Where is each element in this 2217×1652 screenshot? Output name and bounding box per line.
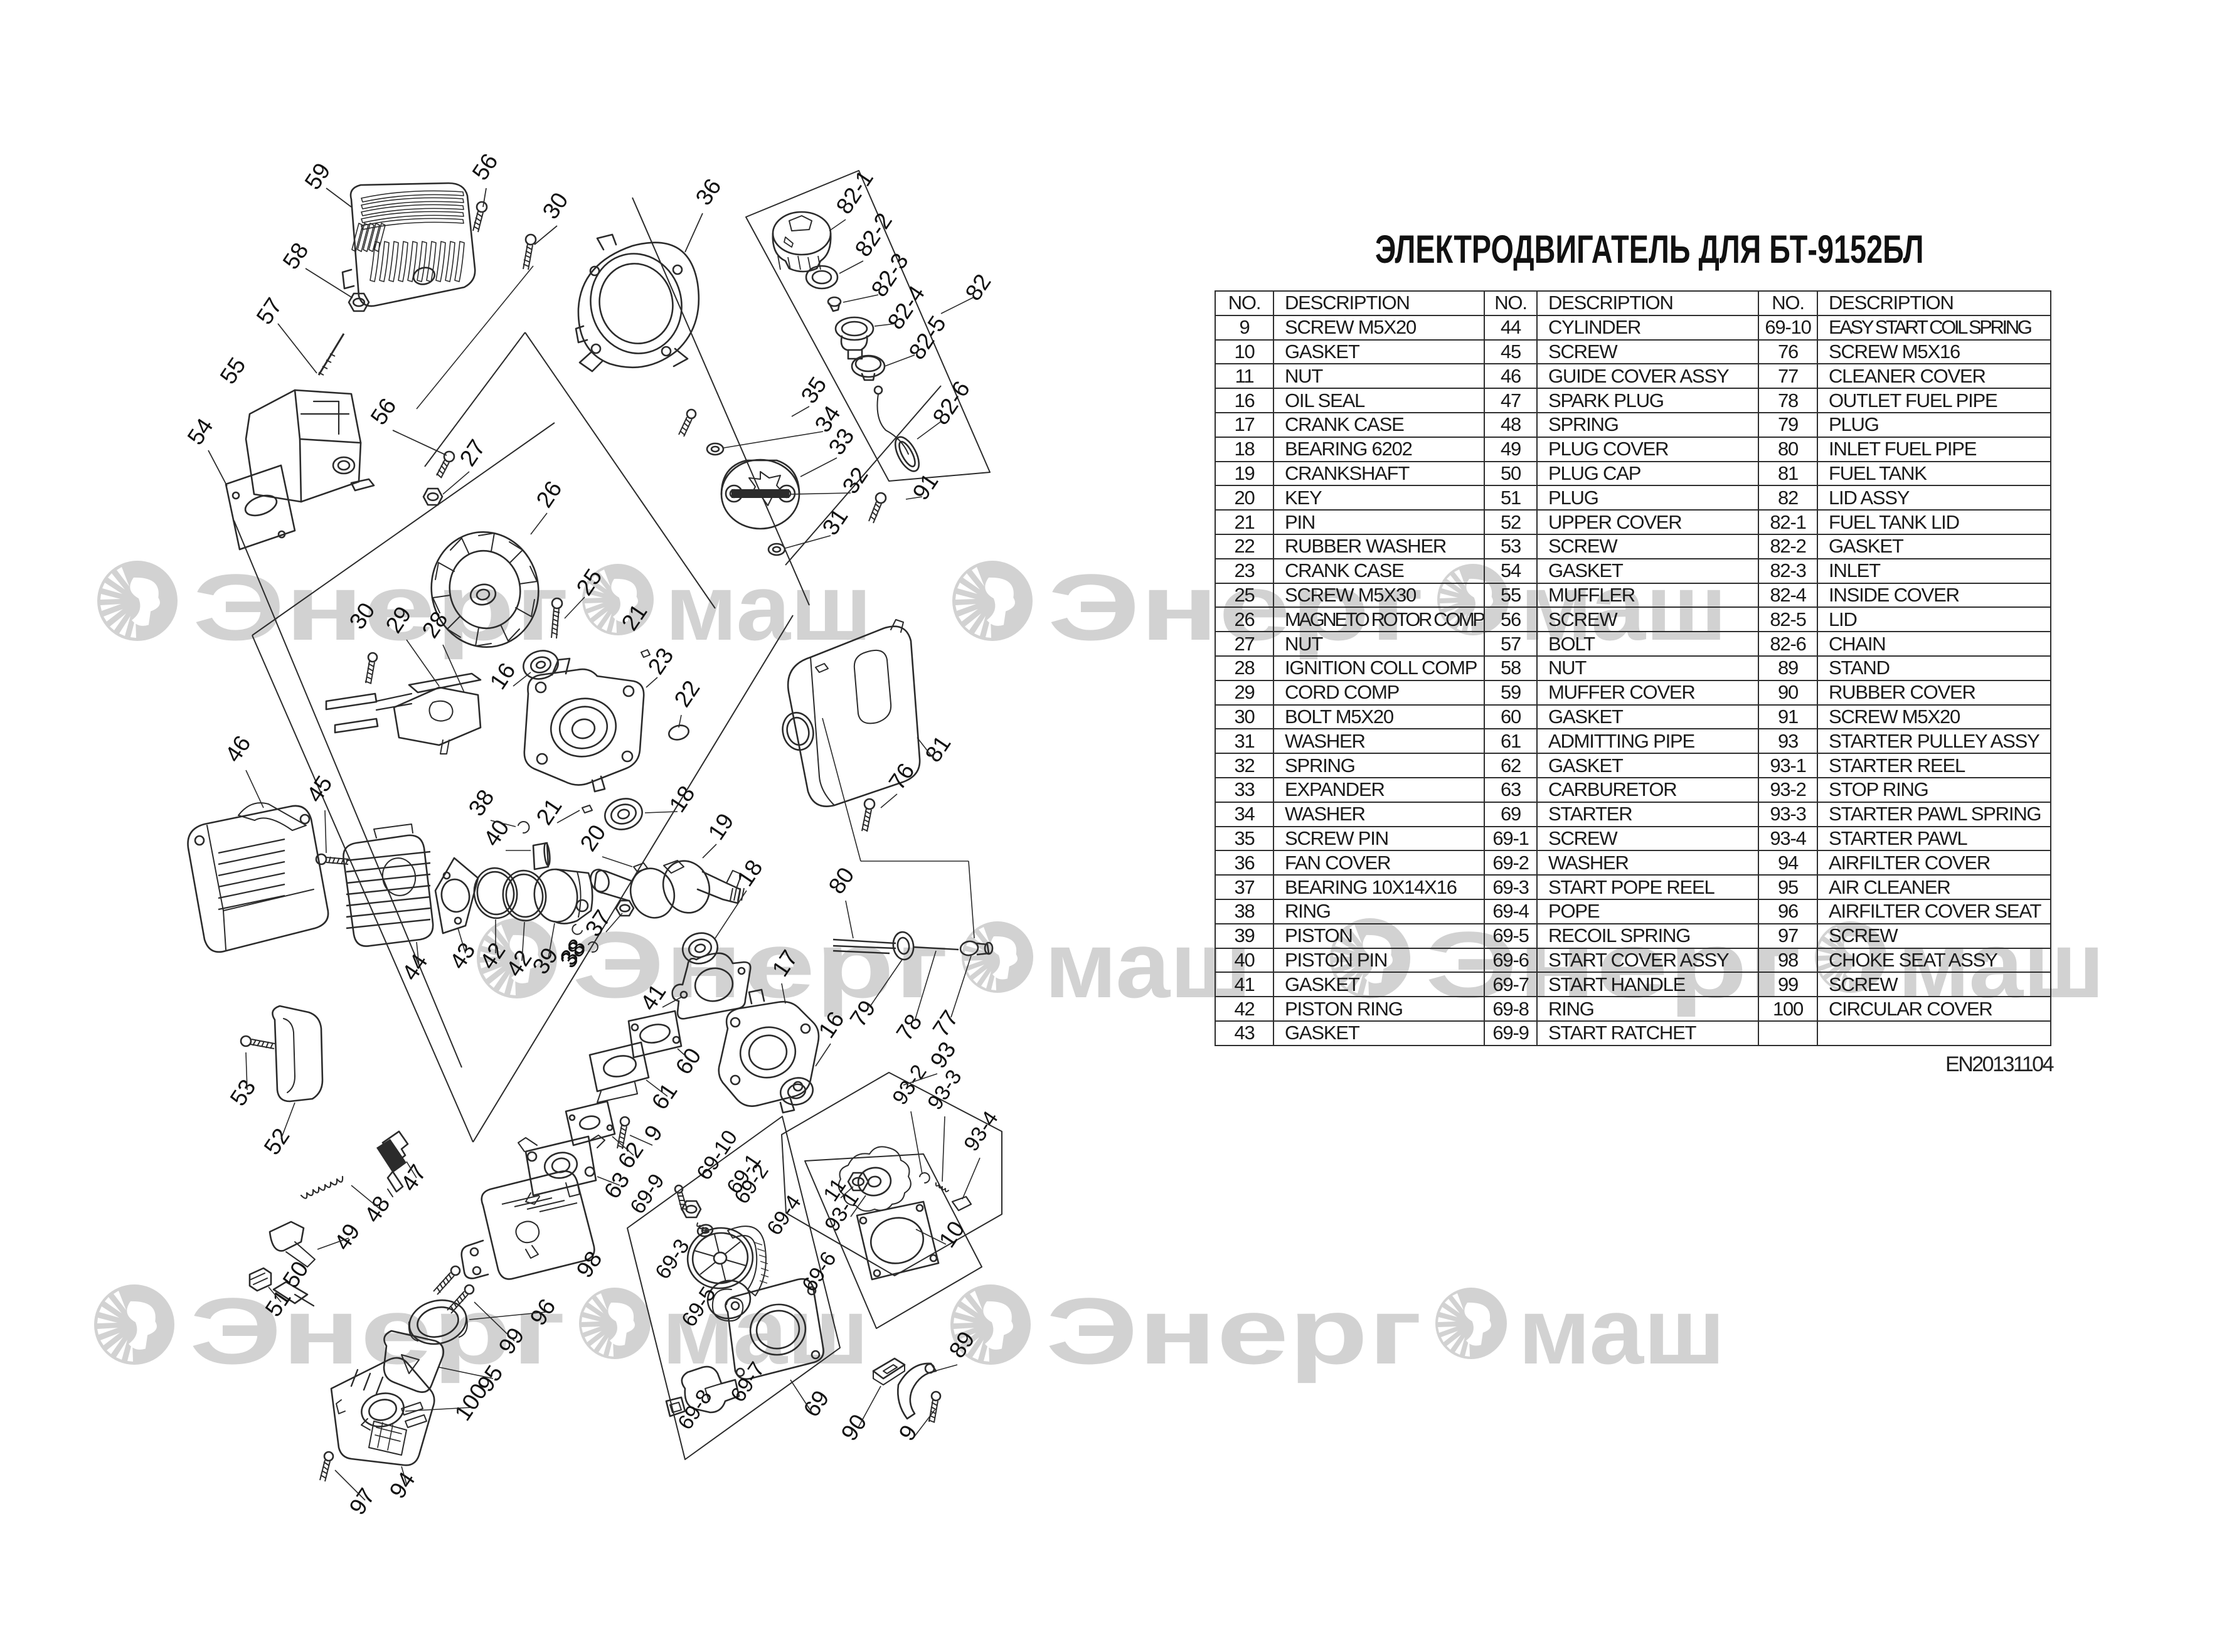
svg-text:94: 94 [385,1467,420,1503]
svg-text:10: 10 [934,1216,970,1252]
svg-text:маш: маш [1518,1278,1725,1384]
svg-text:9: 9 [894,1420,922,1445]
svg-text:9: 9 [639,1120,667,1145]
svg-text:26: 26 [531,476,567,512]
svg-text:Энерг: Энерг [1046,1278,1422,1384]
svg-text:46: 46 [220,731,256,766]
svg-text:маш: маш [665,554,872,660]
svg-text:36: 36 [691,174,726,209]
svg-text:Энерг: Энерг [193,554,569,660]
svg-text:93: 93 [925,1037,961,1072]
svg-text:97: 97 [344,1483,380,1519]
svg-text:21: 21 [531,793,567,829]
svg-text:90: 90 [836,1409,872,1445]
svg-text:82-1: 82-1 [831,166,878,218]
svg-text:69: 69 [799,1385,834,1421]
svg-text:45: 45 [302,771,338,807]
svg-text:76: 76 [884,758,920,794]
svg-text:54: 54 [183,413,218,449]
svg-text:56: 56 [467,149,503,184]
svg-text:30: 30 [538,188,573,223]
svg-text:69-8: 69-8 [673,1385,717,1434]
svg-text:80: 80 [824,862,859,898]
svg-text:49: 49 [329,1219,365,1254]
svg-text:Энерг: Энерг [572,912,949,1017]
svg-text:22: 22 [669,675,705,711]
svg-text:93-4: 93-4 [959,1107,1003,1156]
svg-text:19: 19 [703,808,739,844]
svg-text:63: 63 [599,1167,635,1203]
svg-text:91: 91 [908,469,944,504]
svg-text:31: 31 [817,504,853,539]
svg-text:27: 27 [455,435,491,470]
svg-text:55: 55 [215,352,251,388]
svg-text:53: 53 [225,1074,261,1110]
svg-text:69-9: 69-9 [625,1170,669,1219]
svg-text:58: 58 [278,238,314,273]
svg-text:57: 57 [252,293,287,329]
svg-text:60: 60 [671,1043,706,1079]
svg-text:69-4: 69-4 [762,1191,806,1240]
svg-text:20: 20 [575,820,611,855]
svg-text:59: 59 [300,158,336,194]
svg-text:98: 98 [572,1246,607,1282]
svg-text:38: 38 [464,785,499,820]
svg-text:61: 61 [647,1078,683,1114]
svg-text:52: 52 [259,1123,295,1159]
svg-text:82: 82 [960,269,996,305]
svg-text:56: 56 [366,393,401,429]
svg-text:16: 16 [485,658,521,694]
